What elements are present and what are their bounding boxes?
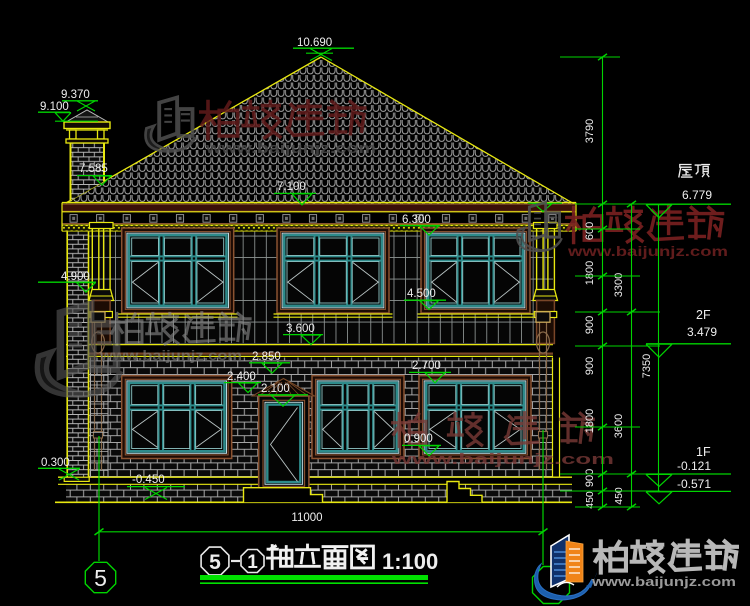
svg-text:2.400: 2.400 [227, 371, 256, 383]
svg-text:900: 900 [584, 469, 596, 487]
svg-text:450: 450 [584, 491, 596, 509]
svg-text:9.100: 9.100 [40, 101, 69, 113]
svg-text:1800: 1800 [584, 409, 596, 433]
svg-text:www.baijunjz.com: www.baijunjz.com [99, 347, 242, 363]
svg-text:2.700: 2.700 [412, 360, 441, 372]
svg-text:7.585: 7.585 [79, 163, 108, 175]
svg-text:4.900: 4.900 [61, 271, 90, 283]
svg-text:2.100: 2.100 [261, 383, 290, 395]
svg-text:1F: 1F [696, 445, 711, 459]
svg-text:600: 600 [584, 222, 596, 240]
svg-text:3790: 3790 [584, 119, 596, 143]
svg-text:-0.571: -0.571 [677, 477, 711, 491]
svg-text:11000: 11000 [291, 512, 322, 524]
svg-text:0.900: 0.900 [404, 433, 433, 445]
svg-text:3.600: 3.600 [286, 323, 315, 335]
svg-text:www.baijunjz.com: www.baijunjz.com [591, 575, 736, 589]
svg-text:10.690: 10.690 [297, 37, 332, 49]
svg-text:5: 5 [209, 551, 221, 574]
svg-text:900: 900 [584, 357, 596, 375]
svg-text:0.300: 0.300 [41, 457, 70, 469]
svg-text:www.baijunjz.com: www.baijunjz.com [390, 452, 614, 468]
svg-text:7350: 7350 [641, 354, 653, 378]
svg-text:-0.450: -0.450 [132, 474, 165, 486]
svg-text:1800: 1800 [584, 261, 596, 285]
svg-text:900: 900 [584, 316, 596, 334]
svg-text:3.479: 3.479 [687, 325, 717, 339]
svg-text:6.779: 6.779 [682, 188, 712, 202]
svg-text:450: 450 [613, 487, 625, 505]
svg-text:5: 5 [94, 565, 107, 591]
svg-text:6.300: 6.300 [402, 214, 431, 226]
svg-text:www.baijunjz.com: www.baijunjz.com [205, 140, 376, 157]
svg-text:1: 1 [247, 552, 258, 573]
svg-text:2.850: 2.850 [252, 351, 281, 363]
svg-text:3600: 3600 [613, 414, 625, 438]
svg-text:2F: 2F [696, 308, 711, 322]
svg-text:7.100: 7.100 [277, 181, 306, 193]
svg-text:4.500: 4.500 [407, 288, 436, 300]
svg-text:www.baijunjz.com: www.baijunjz.com [567, 243, 728, 259]
svg-text:1:100: 1:100 [382, 549, 438, 574]
svg-text:9.370: 9.370 [61, 89, 90, 101]
svg-text:-0.121: -0.121 [677, 459, 711, 473]
